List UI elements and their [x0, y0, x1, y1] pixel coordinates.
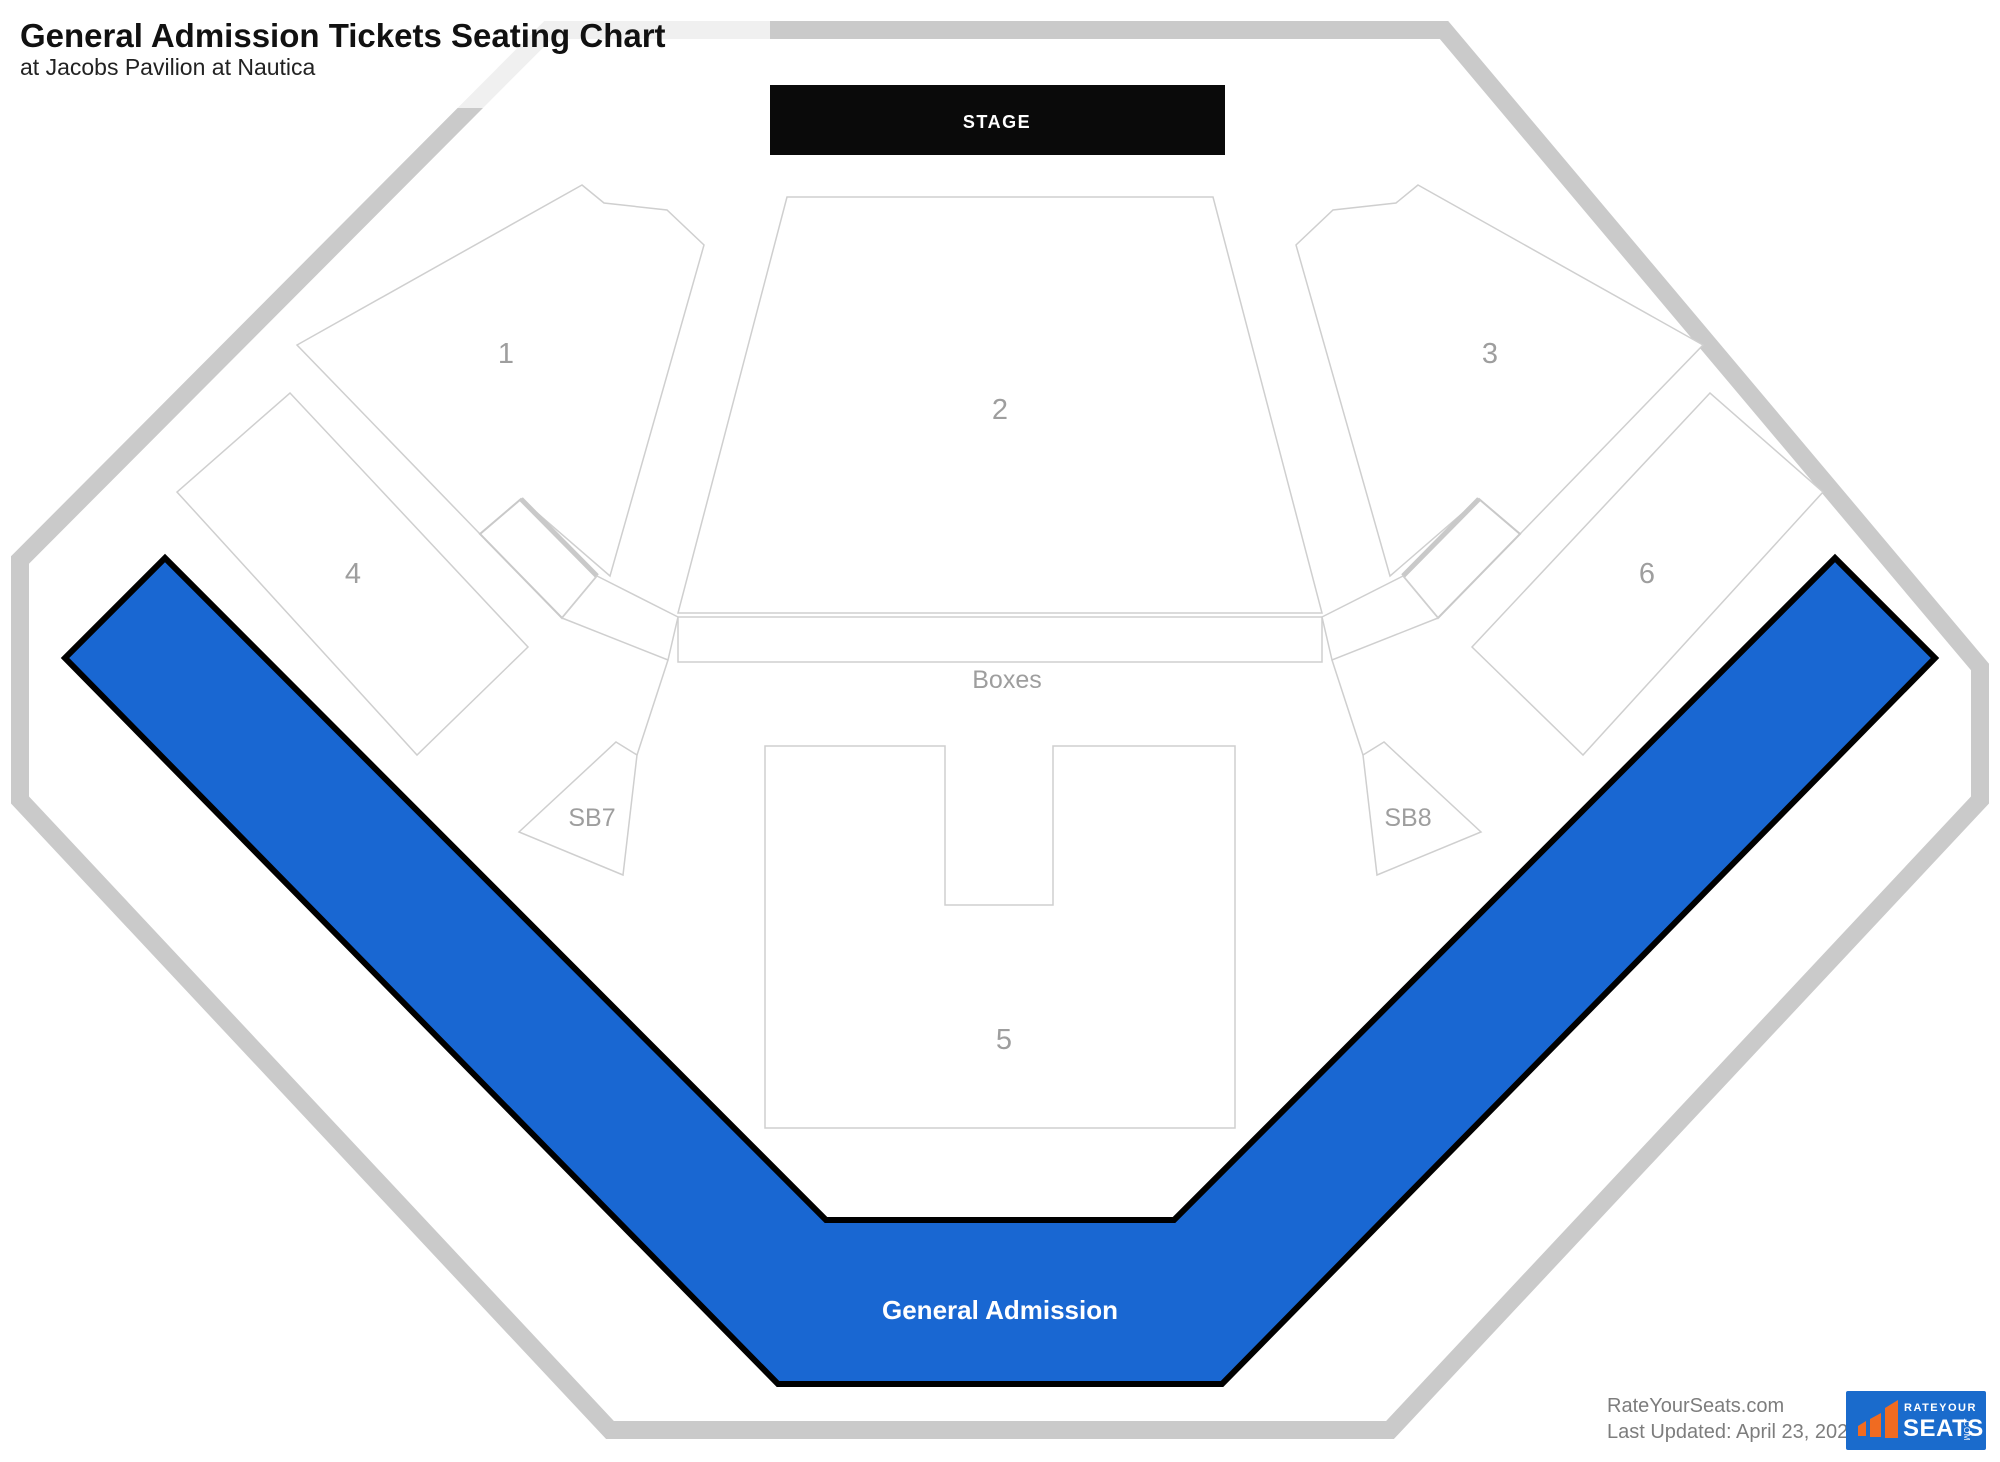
- stage-label: STAGE: [963, 112, 1031, 132]
- section-5-label: 5: [996, 1024, 1012, 1056]
- section-5[interactable]: [765, 746, 1235, 1128]
- page-title: General Admission Tickets Seating Chart: [20, 17, 666, 54]
- page-subtitle: at Jacobs Pavilion at Nautica: [20, 54, 316, 80]
- section-1-label: 1: [498, 338, 514, 370]
- section-4-label: 4: [345, 558, 361, 590]
- section-3-label: 3: [1482, 338, 1498, 370]
- rateyourseats-logo: RATEYOUR SEATS .COM: [1846, 1391, 1986, 1450]
- seating-chart-page: General Admission STAGE 1 2 3 4 6 Boxes …: [0, 0, 2000, 1462]
- footer-site: RateYourSeats.com: [1607, 1395, 1784, 1417]
- logo-text-top: RATEYOUR: [1904, 1402, 1977, 1414]
- aisle-right: [1332, 660, 1363, 755]
- sb7-label: SB7: [568, 804, 615, 832]
- boxes-label: Boxes: [972, 666, 1041, 694]
- section-boxes[interactable]: [678, 617, 1322, 662]
- general-admission-label: General Admission: [882, 1295, 1118, 1325]
- logo-text-suffix: .COM: [1962, 1418, 1971, 1441]
- section-2-label: 2: [992, 394, 1008, 426]
- section-6-label: 6: [1639, 558, 1655, 590]
- sb8-label: SB8: [1384, 804, 1431, 832]
- aisle-left: [637, 660, 668, 755]
- footer-updated: Last Updated: April 23, 2022: [1607, 1421, 1859, 1443]
